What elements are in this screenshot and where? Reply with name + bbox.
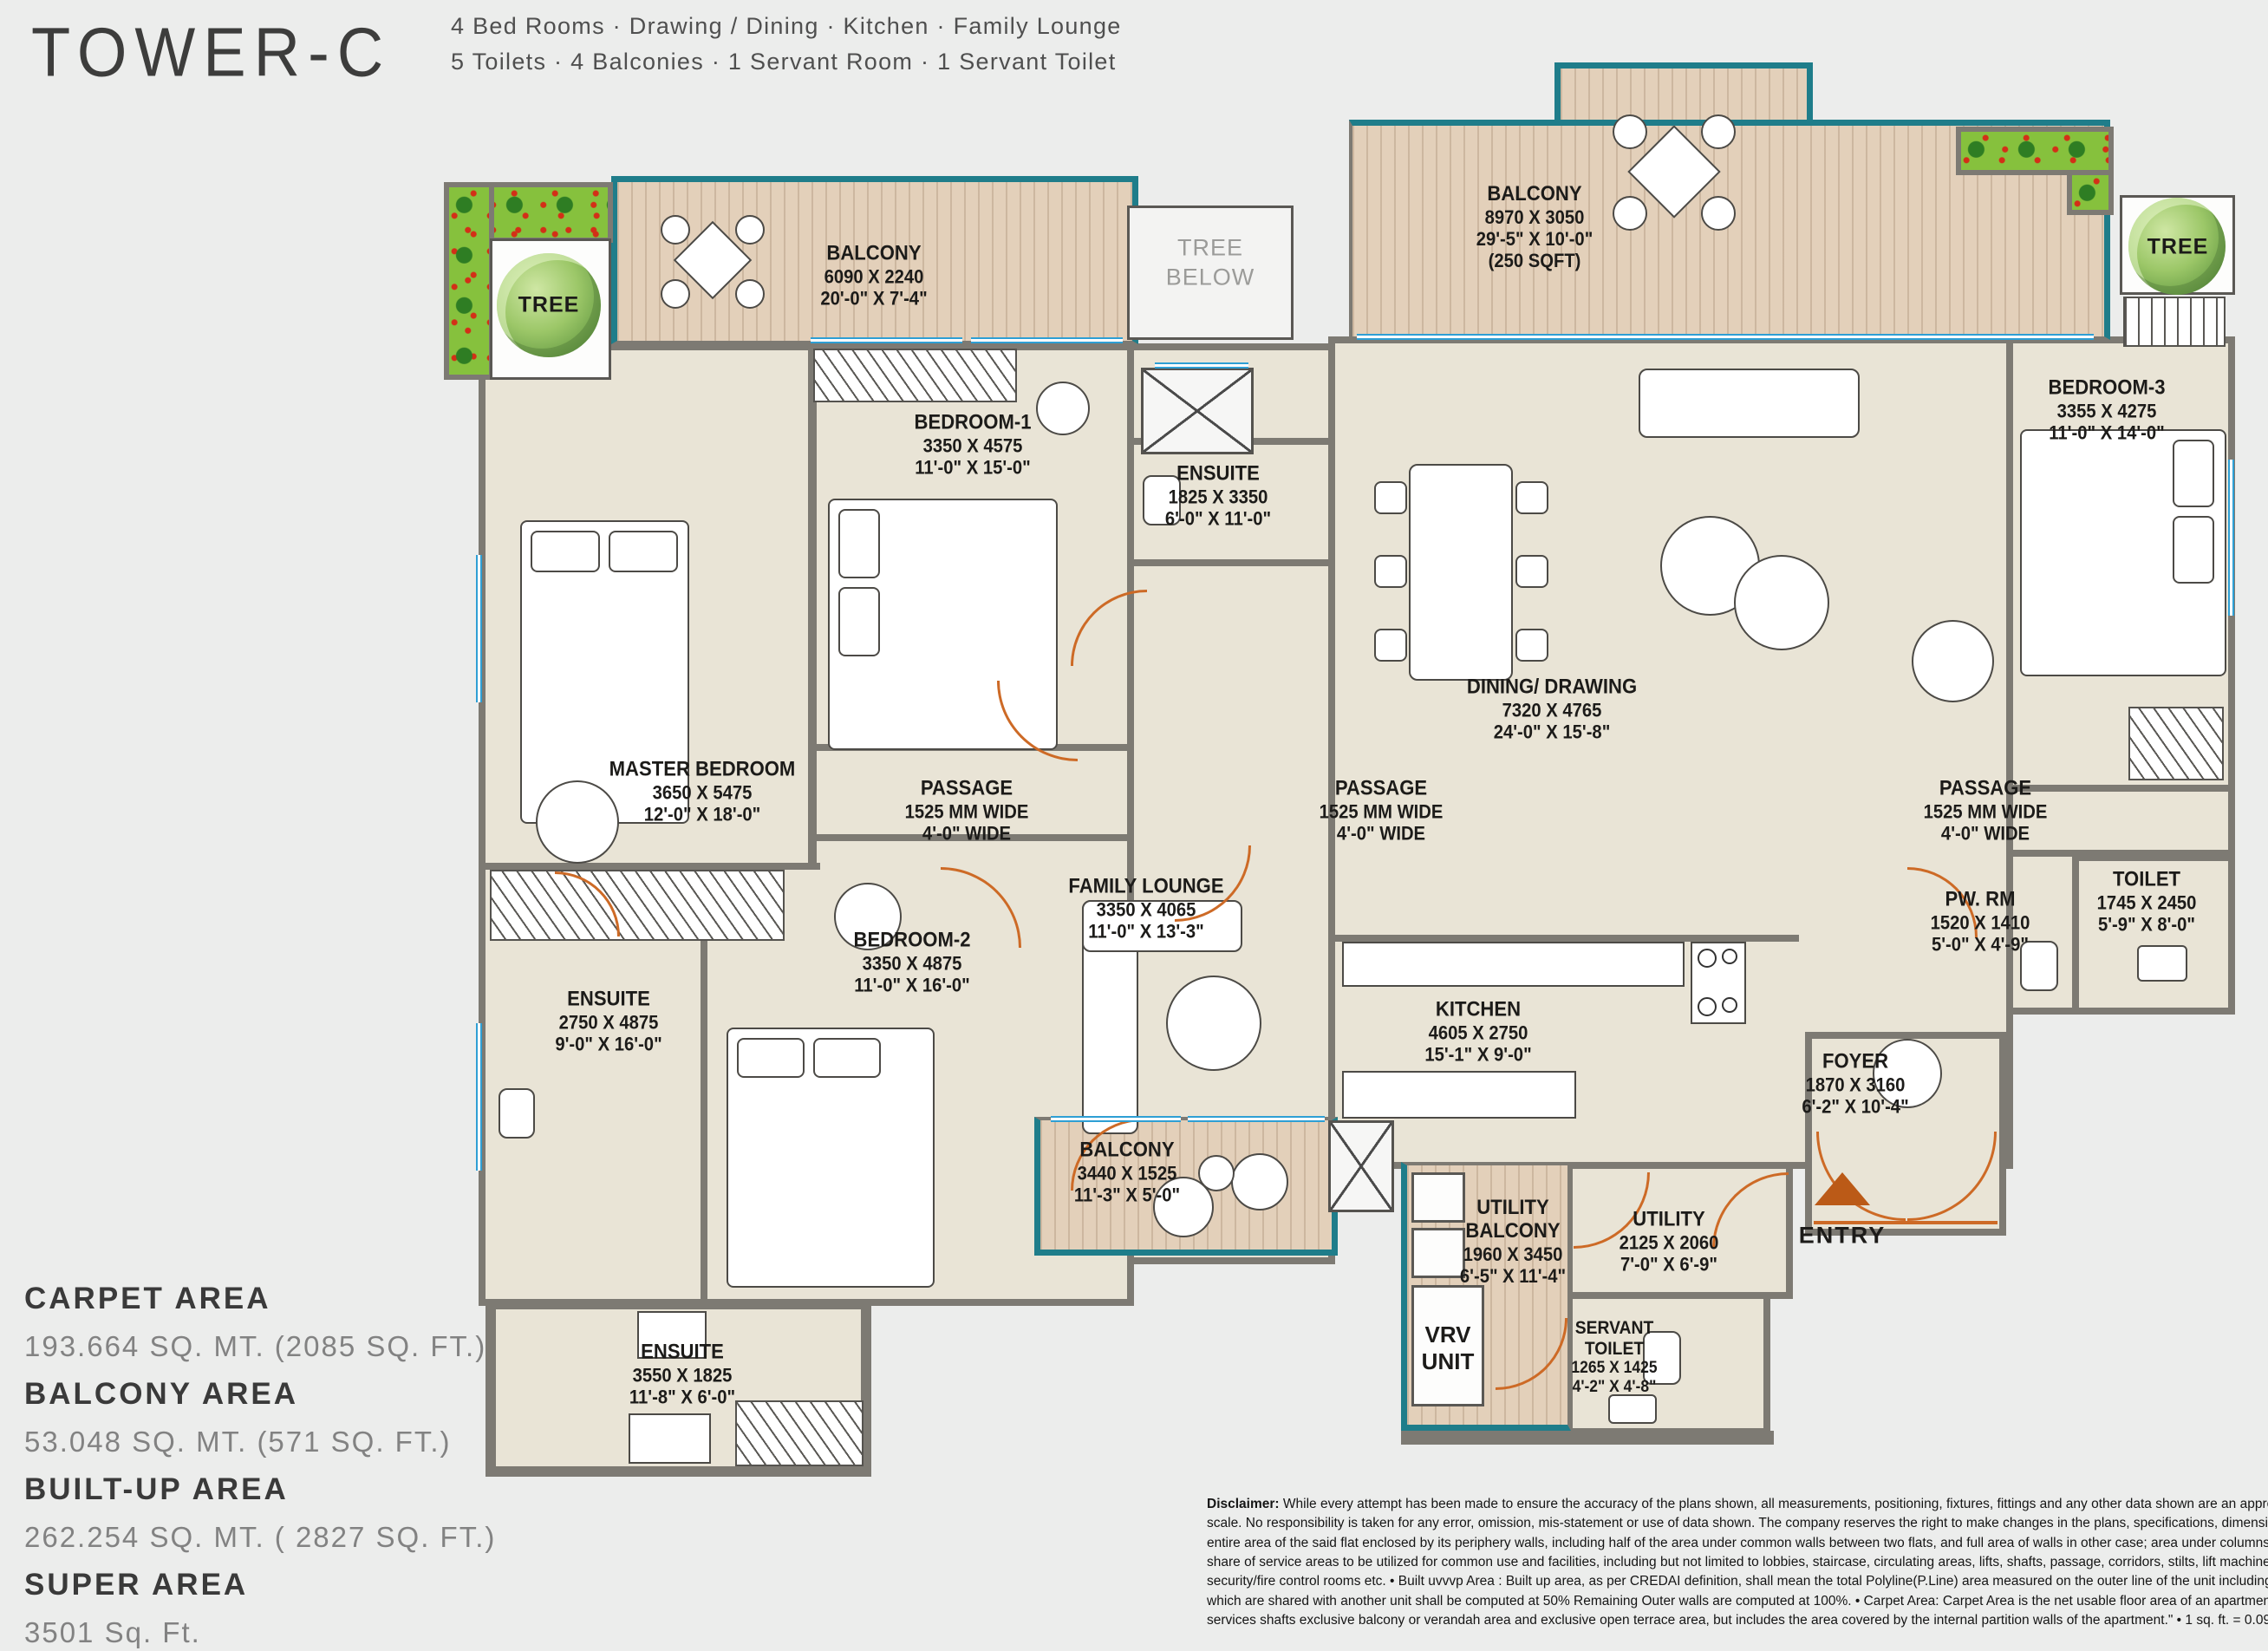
dining-chair [1515,481,1548,514]
basin [2137,945,2187,982]
room-dim-ft: 11'-0" X 16'-0" [854,974,969,995]
wall [808,347,817,867]
room-name: ENSUITE [567,988,650,1011]
room-dim-ft: 6'-2" X 10'-4" [1802,1095,1908,1117]
room-dim-mm: 1525 MM WIDE [1320,800,1444,822]
tv-console [629,1413,711,1464]
room-name: BALCONY [1079,1139,1174,1162]
lounge-table [1166,976,1261,1071]
room-dim-mm: 3550 X 1825 [633,1364,733,1386]
room-name: FOYER [1822,1050,1888,1073]
super-area-label: SUPER AREA [24,1568,496,1602]
room-dim-ft: 20'-0" X 7'-4" [820,287,927,309]
room-name: FAMILY LOUNGE [1068,875,1223,898]
room-dim-mm: 1870 X 3160 [1806,1073,1906,1095]
builtup-area-label: BUILT-UP AREA [24,1472,496,1507]
wall [482,863,820,870]
planter-right [1956,127,2114,175]
disclaimer-line: Disclaimer: While every attempt has been… [1207,1495,2268,1514]
room-label-bedroom1: BEDROOM-1 3350 X 4575 11'-0" X 15'-0" [915,411,1032,478]
window [2228,460,2234,616]
ledge-hatch [2123,297,2226,347]
unit-summary: 4 Bed Rooms · Drawing / Dining · Kitchen… [451,9,1122,79]
stairs-hatch [735,1400,864,1466]
room-name: BEDROOM-1 [915,411,1032,434]
room-dim-ft: 11'-0" X 15'-0" [915,456,1030,478]
balcony-side-table [1198,1155,1235,1191]
wall [1335,935,1799,942]
wall [1401,1431,1774,1445]
room-name: ENSUITE [641,1341,724,1364]
pillow [2173,516,2214,584]
room-name: BEDROOM-2 [854,929,971,952]
wardrobe-hatch [2128,707,2224,780]
pillow [838,587,880,656]
window [1357,334,2094,340]
room-dim-ft: 6'-5" X 11'-4" [1460,1265,1566,1287]
round-chair [536,780,619,864]
room-name: UTILITY BALCONY [1465,1197,1560,1243]
shaft-box [1141,368,1254,454]
wall [2010,850,2232,857]
room-dim-mm: 1745 X 2450 [2097,891,2197,913]
room-dim-mm: 2125 X 2060 [1620,1231,1719,1253]
wardrobe-hatch [490,870,785,941]
room-label-ensuite3: ENSUITE 3550 X 1825 11'-8" X 6'-0" [629,1341,735,1407]
burner [1722,997,1737,1013]
room-dim-ft: 4'-2" X 4'-8" [1573,1378,1657,1397]
room-dim-ft: 11'-0" X 14'-0" [2049,421,2164,443]
super-area-value: 3501 Sq. Ft. [24,1616,496,1649]
dining-chair [1374,629,1407,662]
window [971,337,1123,343]
room-label-passage-1: PASSAGE 1525 MM WIDE 4'-0" WIDE [905,777,1029,844]
balcony-top-right-bump [1554,62,1813,127]
planter-right-bump [2067,170,2114,215]
room-dim-ft: 4'-0" WIDE [1941,822,2030,844]
kitchen-island [1342,1071,1576,1119]
dining-chair [1374,555,1407,588]
builtup-area-value: 262.254 SQ. MT. ( 2827 SQ. FT.) [24,1521,496,1554]
window [1155,362,1248,369]
room-name: DINING/ DRAWING [1467,675,1637,699]
room-dim-mm: 1825 X 3350 [1169,486,1268,507]
patio-chair [661,279,690,309]
room-dim-ft: 7'-0" X 6'-9" [1620,1253,1717,1275]
window [811,337,962,343]
disclaimer-line: which are shared with another unit shall… [1207,1592,2268,1611]
room-name: PASSAGE [1335,777,1427,800]
balcony-area-label: BALCONY AREA [24,1377,496,1412]
pillow [813,1038,881,1078]
burner [1698,949,1717,968]
carpet-area-label: CARPET AREA [24,1282,496,1316]
room-label-passage-3: PASSAGE 1525 MM WIDE 4'-0" WIDE [1924,777,2048,844]
area-statistics: CARPET AREA 193.664 SQ. MT. (2085 SQ. FT… [24,1282,496,1649]
disclaimer-line: entire area of the said flat enclosed by… [1207,1534,2268,1553]
room-dim-mm: 3350 X 4575 [923,434,1023,456]
shaft-box [1328,1120,1394,1212]
room-dim-ft: 6'-0" X 11'-0" [1165,507,1271,529]
room-label-bedroom3: BEDROOM-3 3355 X 4275 11'-0" X 14'-0" [2049,376,2166,443]
room-dim-mm: 7320 X 4765 [1502,699,1602,721]
pillow [838,509,880,578]
room-dim-mm: 3355 X 4275 [2057,400,2157,421]
room-label-utility: UTILITY 2125 X 2060 7'-0" X 6'-9" [1620,1208,1719,1275]
patio-chair [1701,196,1736,231]
room-label-family-lounge: FAMILY LOUNGE 3350 X 4065 11'-0" X 13'-3… [1068,875,1223,942]
tree-below-label: TREE BELOW [1166,233,1255,292]
entry-arrow-icon [1815,1172,1870,1205]
basin [1608,1394,1657,1424]
patio-chair [661,215,690,245]
coffee-table [1734,555,1829,650]
disclaimer-text: Disclaimer: While every attempt has been… [1207,1495,2268,1644]
room-dim-ft: 15'-1" X 9'-0" [1424,1043,1531,1065]
room-name: TOILET [2113,868,2180,891]
balcony-chair [1231,1153,1288,1211]
room-label-pw-rm: PW. RM 1520 X 1410 5'-0" X 4'-9" [1931,888,2030,955]
dining-chair [1515,555,1548,588]
disclaimer-line1-rest: While every attempt has been made to ens… [1280,1497,2268,1511]
room-label-master-bedroom: MASTER BEDROOM 3650 X 5475 12'-0" X 18'-… [609,758,796,825]
room-name: PASSAGE [1939,777,2031,800]
patio-chair [1613,196,1647,231]
patio-chair [735,279,765,309]
room-name: SERVANT TOILET [1575,1318,1654,1359]
patio-chair [1613,114,1647,149]
room-dim-mm: 3350 X 4065 [1097,898,1196,920]
room-dim-ft: 4'-0" WIDE [922,822,1011,844]
room-name: MASTER BEDROOM [609,758,796,781]
room-name: PASSAGE [921,777,1013,800]
pillow [2173,440,2214,507]
window [1051,1116,1181,1122]
room-label-servant-toilet: SERVANT TOILET 1265 X 1425 4'-2" X 4'-8" [1571,1318,1657,1396]
page-title: TOWER-C [31,12,391,92]
sofa [1639,369,1860,438]
room-label-ensuite1: ENSUITE 1825 X 3350 6'-0" X 11'-0" [1165,462,1271,529]
room-label-balcony-top-left: BALCONY 6090 X 2240 20'-0" X 7'-4" [820,242,927,309]
wardrobe-hatch [813,349,1017,402]
room-label-balcony-top-right: BALCONY 8970 X 3050 29'-5" X 10'-0" (250… [1476,183,1593,271]
room-dim-ft: 5'-9" X 8'-0" [2098,913,2195,935]
washer [1411,1172,1465,1223]
room-dim-mm: 1525 MM WIDE [1924,800,2048,822]
room-name: KITCHEN [1436,998,1521,1021]
room-label-passage-2: PASSAGE 1525 MM WIDE 4'-0" WIDE [1320,777,1444,844]
room-name: ENSUITE [1176,462,1260,486]
room-dim-ft: 11'-3" X 5'-0" [1074,1184,1180,1205]
dining-chair [1515,629,1548,662]
planter-left-side [444,182,494,380]
room-name: PW. RM [1945,888,2016,911]
kitchen-counter [1342,942,1685,987]
room-dim-mm: 1265 X 1425 [1571,1359,1657,1378]
room-dim-ft: 11'-8" X 6'-0" [629,1386,735,1407]
room-dim-ft: 9'-0" X 16'-0" [555,1033,661,1054]
room-name: UTILITY [1633,1208,1704,1231]
window [476,555,482,702]
room-label-foyer: FOYER 1870 X 3160 6'-2" X 10'-4" [1802,1050,1908,1117]
room-name: BALCONY [1487,183,1581,206]
room-dim-mm: 8970 X 3050 [1485,206,1585,228]
room-dim-ft: 11'-0" X 13'-3" [1088,920,1203,942]
window [1188,1116,1325,1122]
wall [1131,559,1335,566]
patio-chair [1701,114,1736,149]
room-dim-mm: 4605 X 2750 [1429,1021,1528,1043]
room-dim-mm: 2750 X 4875 [559,1011,659,1033]
patio-chair [735,215,765,245]
room-dim-ft: 4'-0" WIDE [1337,822,1425,844]
room-name: BEDROOM-3 [2049,376,2166,400]
room-dim-mm: 1520 X 1410 [1931,911,2030,933]
window [476,1023,482,1171]
room-dim-mm: 1525 MM WIDE [905,800,1029,822]
unit-summary-line2: 5 Toilets · 4 Balconies · 1 Servant Room… [451,44,1122,80]
room-dim-ft: 24'-0" X 15'-8" [1494,721,1611,742]
room-label-ensuite2: ENSUITE 2750 X 4875 9'-0" X 16'-0" [555,988,661,1054]
disclaimer-bold-prefix: Disclaimer: [1207,1497,1280,1511]
pillow [737,1038,805,1078]
toilet-wc [499,1088,535,1139]
burner [1722,949,1737,964]
floorplan-poster: TOWER-C 4 Bed Rooms · Drawing / Dining ·… [0,0,2268,1651]
room-label-toilet: TOILET 1745 X 2450 5'-9" X 8'-0" [2097,868,2197,935]
desk-chair [1036,382,1090,435]
room-dim-mm: 1960 X 3450 [1463,1243,1563,1265]
dining-table [1409,464,1513,681]
room-dim-mm: 3440 X 1525 [1078,1162,1177,1184]
unit-summary-line1: 4 Bed Rooms · Drawing / Dining · Kitchen… [451,9,1122,44]
room-dim-mm: 3350 X 4875 [863,952,962,974]
washer [1411,1228,1465,1278]
disclaimer-line: share of service areas to be utilized fo… [1207,1553,2268,1572]
room-dim-ft: 5'-0" X 4'-9" [1932,933,2029,955]
carpet-area-value: 193.664 SQ. MT. (2085 SQ. FT.) [24,1330,496,1363]
tree-label: TREE [518,293,580,318]
room-dim-mm: 6090 X 2240 [824,265,924,287]
entry-label: ENTRY [1799,1223,1887,1250]
room-name: BALCONY [826,242,921,265]
room-label-utility-balcony: UTILITY BALCONY 1960 X 3450 6'-5" X 11'-… [1460,1197,1566,1287]
vrv-unit-label: VRV UNIT [1422,1321,1475,1375]
room-label-dining-drawing: DINING/ DRAWING 7320 X 4765 24'-0" X 15'… [1467,675,1637,742]
room-dim-ft: 29'-5" X 10'-0" [1476,228,1593,250]
room-dim-extra: (250 SQFT) [1489,250,1581,271]
room-dim-ft: 12'-0" X 18'-0" [644,803,761,825]
lounge-chair [1912,620,1994,702]
room-label-kitchen: KITCHEN 4605 X 2750 15'-1" X 9'-0" [1424,998,1531,1065]
tree-label: TREE [2147,235,2209,260]
dining-chair [1374,481,1407,514]
disclaimer-line: security/fire control rooms etc. • Built… [1207,1572,2268,1591]
room-label-bedroom2: BEDROOM-2 3350 X 4875 11'-0" X 16'-0" [854,929,971,995]
room-label-balcony-bottom: BALCONY 3440 X 1525 11'-3" X 5'-0" [1074,1139,1180,1205]
disclaimer-line: scale. No responsibility is taken for an… [1207,1514,2268,1533]
burner [1698,997,1717,1016]
room-dim-mm: 3650 X 5475 [653,781,753,803]
disclaimer-line: services shafts exclusive balcony or ver… [1207,1611,2268,1630]
pillow [531,531,600,572]
pillow [609,531,678,572]
balcony-area-value: 53.048 SQ. MT. (571 SQ. FT.) [24,1426,496,1458]
